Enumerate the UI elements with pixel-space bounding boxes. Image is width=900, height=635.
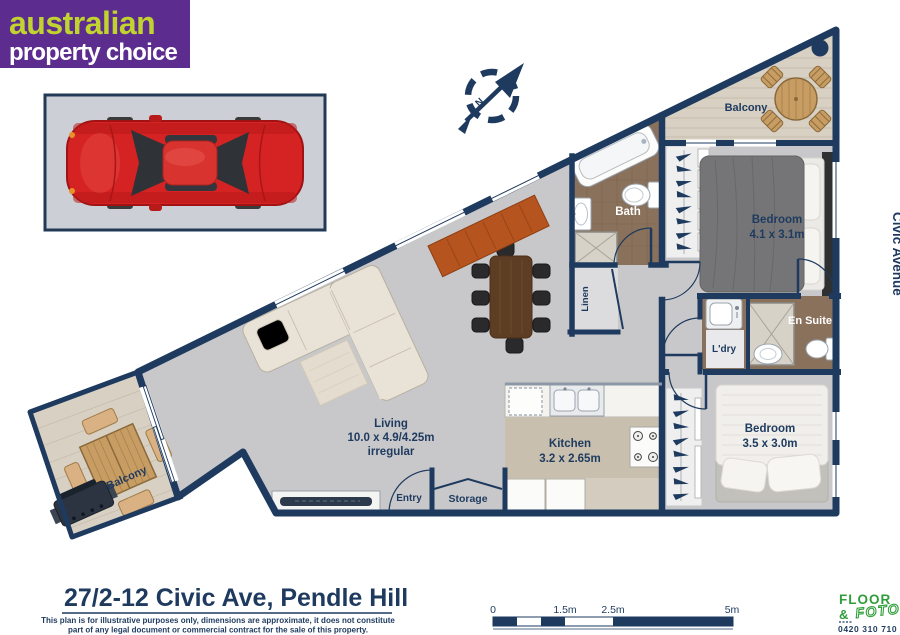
bath-label: Bath — [615, 206, 641, 218]
pillow — [720, 457, 768, 493]
wardrobe-shelf — [695, 446, 701, 498]
bedroom-second-dims: 3.5 x 3.0m — [743, 438, 798, 450]
footer: 27/2-12 Civic Ave, Pendle Hill This plan… — [41, 584, 900, 635]
balcony-top-label: Balcony — [725, 102, 769, 114]
bedroom-second-label: Bedroom — [745, 423, 795, 435]
brand-name-line2: property choice — [9, 39, 177, 66]
bedroom-main-label: Bedroom — [752, 214, 802, 226]
brand-name-line1: australian — [9, 5, 155, 41]
floorplan-page: N Balcony Bedroom 4.1 x 3.1m Bath Linen … — [0, 0, 900, 635]
scale-tick-2: 2.5m — [601, 604, 625, 616]
disclaimer-line1: This plan is for illustrative purposes o… — [41, 616, 395, 625]
living-label: Living — [374, 418, 408, 430]
vendor-word2: FOTO — [855, 600, 900, 621]
pillow — [766, 453, 821, 492]
bedroom-second-wardrobe — [666, 388, 702, 506]
wardrobe-shelf — [695, 398, 701, 440]
laundry-label: L'dry — [712, 344, 736, 355]
scale-bar: 0 1.5m 2.5m 5m — [490, 604, 739, 629]
bedroom-main-dims: 4.1 x 3.1m — [750, 229, 805, 241]
car-mirror — [149, 115, 162, 122]
address-title: 27/2-12 Civic Ave, Pendle Hill — [64, 584, 408, 612]
tv-unit — [272, 491, 380, 512]
ensuite-label: En Suite — [788, 315, 832, 327]
scale-tick-3: 5m — [725, 604, 740, 616]
toilet-bath — [622, 182, 660, 208]
vendor-amp: & — [839, 607, 848, 622]
floorplan-canvas: N Balcony Bedroom 4.1 x 3.1m Bath Linen … — [0, 0, 900, 635]
linen-floor — [572, 265, 618, 332]
dishwasher — [509, 388, 542, 415]
entry-label: Entry — [396, 493, 422, 504]
laundry-tub — [706, 299, 742, 329]
storage-label: Storage — [448, 493, 487, 505]
compass-north-label: N — [474, 96, 487, 109]
car — [67, 115, 303, 211]
compass-arrowhead — [495, 63, 524, 98]
kitchen-cabinet — [546, 479, 585, 512]
street-name-label: Civic Avenue — [890, 212, 900, 296]
brand-logo: australian property choice — [0, 0, 190, 68]
kitchen-dims: 3.2 x 2.65m — [539, 453, 600, 465]
scale-tick-1: 1.5m — [553, 604, 577, 616]
living-note: irregular — [368, 446, 415, 458]
car-space — [45, 95, 325, 230]
toilet-ensuite — [806, 338, 836, 360]
ensuite-sink — [754, 344, 782, 364]
kitchen-label: Kitchen — [549, 438, 591, 450]
car-mirror — [149, 204, 162, 211]
vendor-logo: FLOOR & FOTO 0420 310 710 — [838, 592, 900, 634]
linen-label: Linen — [580, 286, 591, 312]
living-dims: 10.0 x 4.9/4.25m — [348, 432, 435, 444]
cooktop — [630, 427, 661, 467]
kitchen-sink — [550, 385, 604, 416]
bath-shower — [575, 232, 617, 264]
scale-tick-0: 0 — [490, 604, 496, 616]
kitchen-cabinet — [506, 479, 545, 512]
disclaimer-line2: part of any legal document or commercial… — [68, 626, 368, 635]
compass: N — [458, 63, 524, 134]
vendor-phone: 0420 310 710 — [838, 624, 897, 634]
compass-tail — [458, 115, 472, 134]
